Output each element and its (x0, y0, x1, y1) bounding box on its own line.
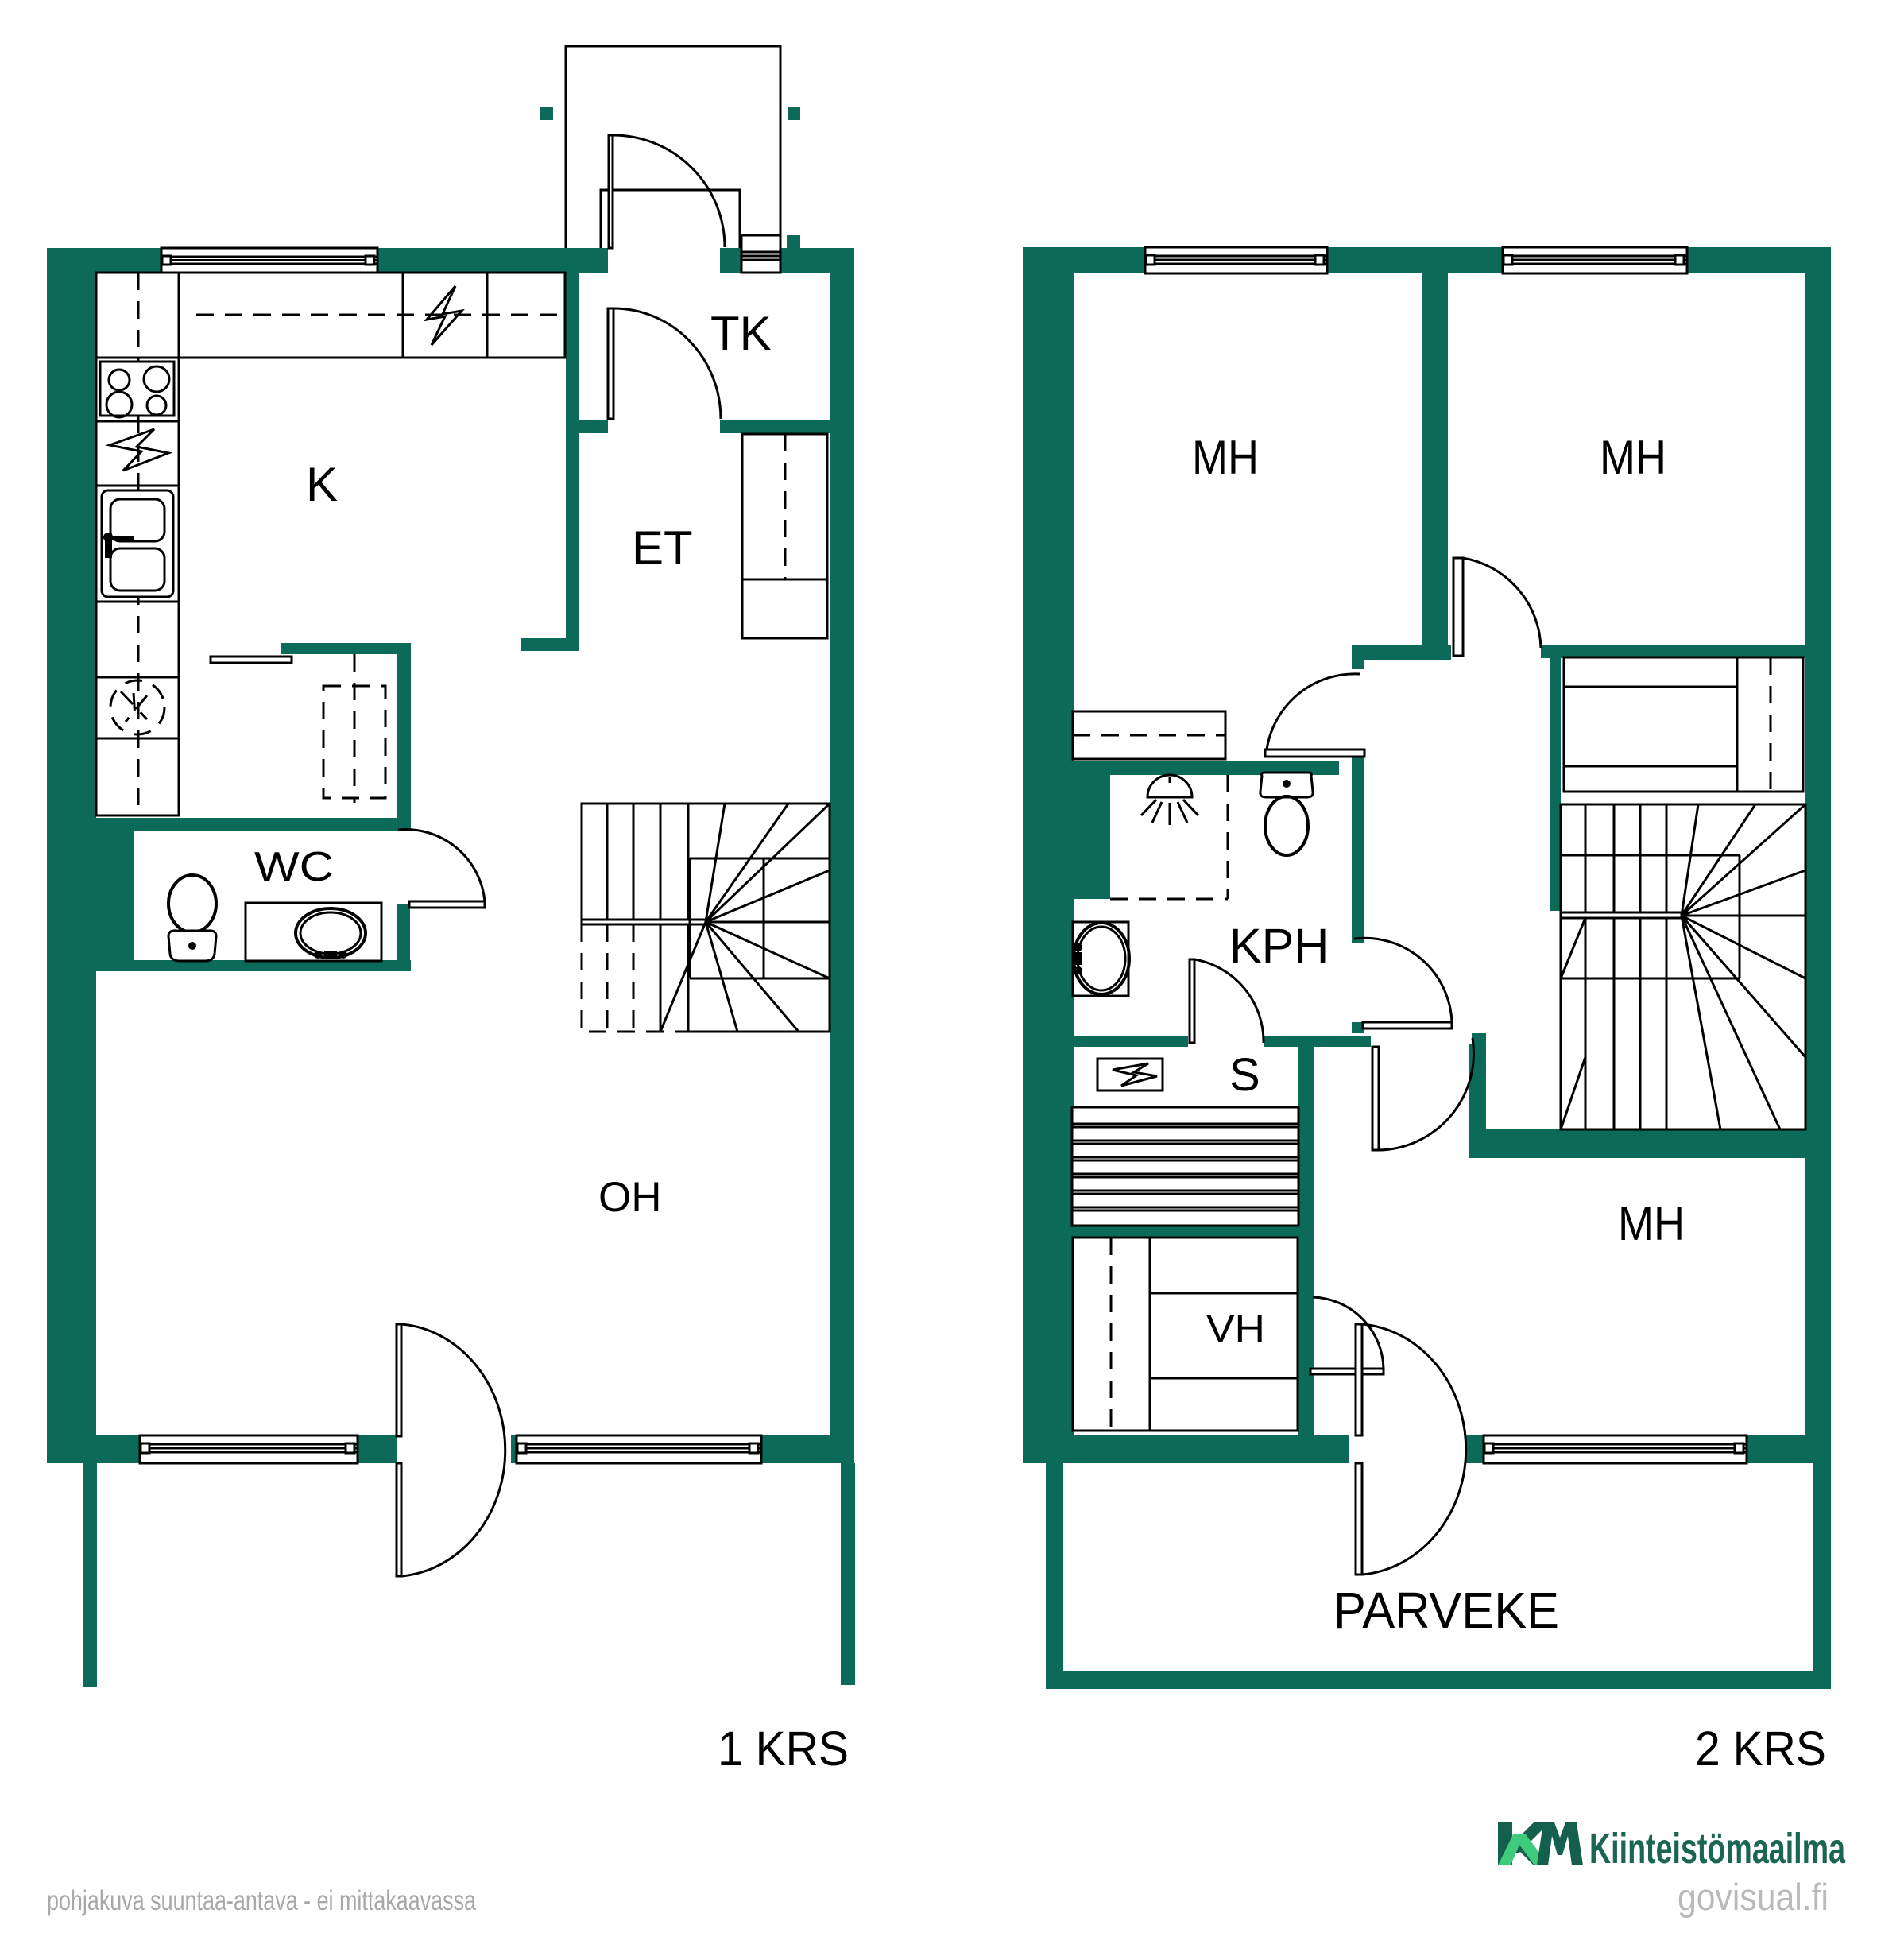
svg-text:OH: OH (598, 1174, 662, 1221)
svg-text:K: K (306, 458, 338, 511)
svg-text:KPH: KPH (1229, 919, 1329, 973)
svg-text:2 KRS: 2 KRS (1695, 1722, 1826, 1776)
svg-text:MH: MH (1192, 431, 1259, 484)
svg-text:Kiinteistömaailma: Kiinteistömaailma (1589, 1825, 1846, 1873)
svg-text:TK: TK (710, 307, 772, 360)
svg-text:pohjakuva suuntaa-antava - ei: pohjakuva suuntaa-antava - ei mittakaava… (47, 1885, 476, 1916)
svg-text:WC: WC (254, 844, 334, 890)
svg-text:ET: ET (632, 521, 693, 575)
svg-text:MH: MH (1600, 431, 1666, 484)
svg-text:govisual.fi: govisual.fi (1678, 1876, 1829, 1918)
svg-text:MH: MH (1618, 1197, 1685, 1250)
svg-text:S: S (1229, 1049, 1260, 1101)
svg-text:PARVEKE: PARVEKE (1333, 1582, 1559, 1639)
svg-text:1 KRS: 1 KRS (718, 1722, 849, 1776)
svg-text:VH: VH (1206, 1308, 1265, 1350)
